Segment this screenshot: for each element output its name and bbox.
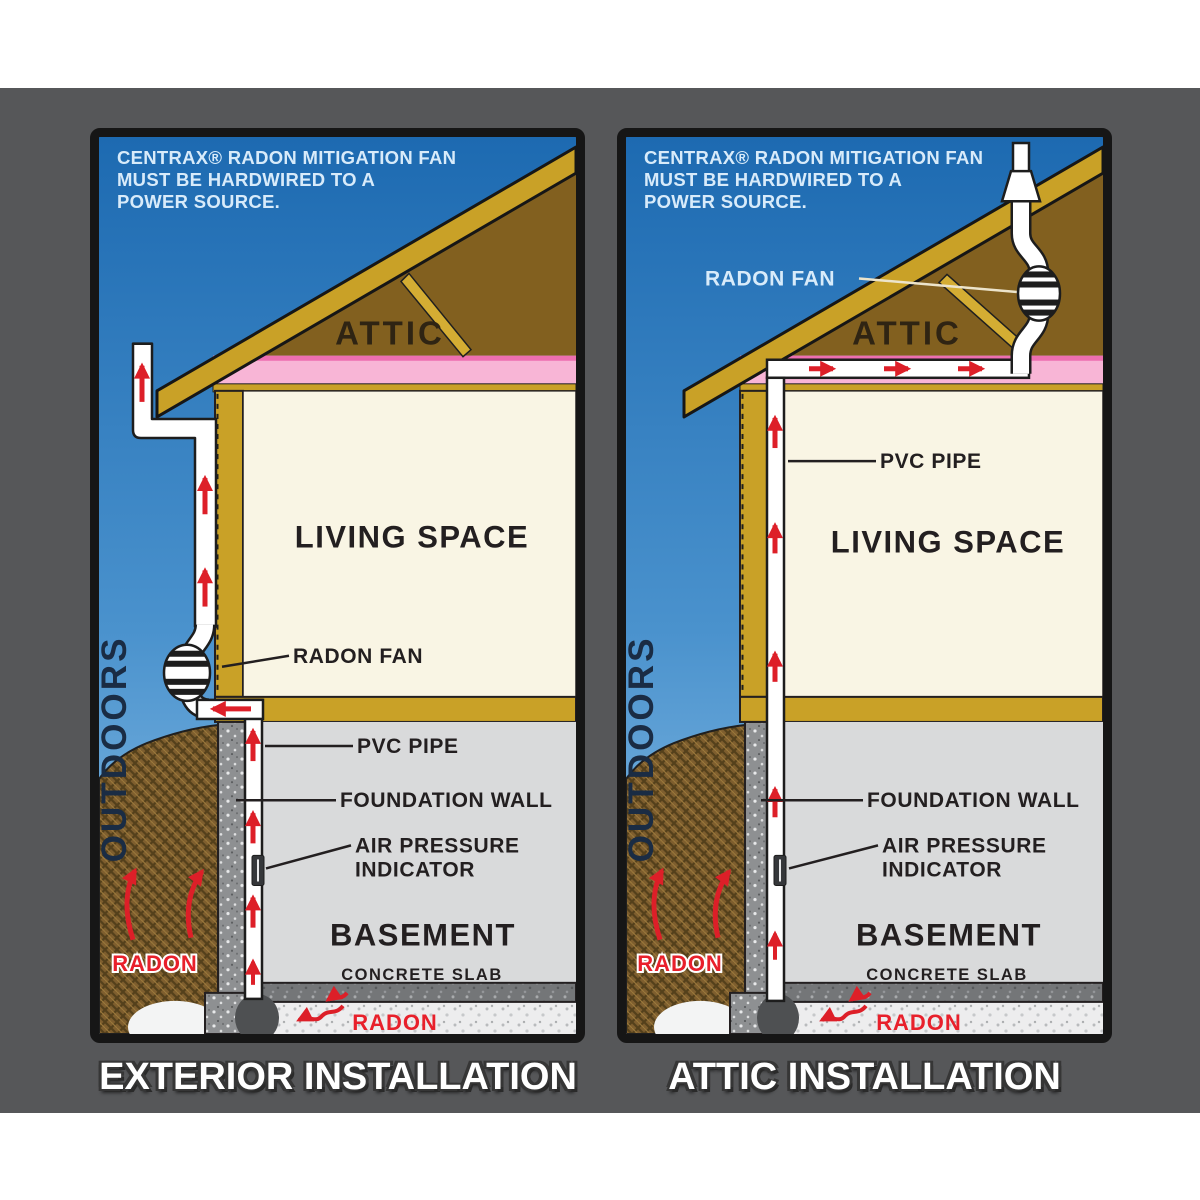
- caption-line-2: MUST BE HARDWIRED TO A: [117, 169, 375, 190]
- caption-line-3: POWER SOURCE.: [644, 191, 807, 212]
- radon-fan-label: RADON FAN: [293, 645, 423, 668]
- pvc-pipe-interior: [767, 378, 784, 1001]
- caption-line-3: POWER SOURCE.: [117, 191, 280, 212]
- caption-line-1: CENTRAX® RADON MITIGATION FAN: [644, 147, 983, 168]
- air-pressure-label-2: INDICATOR: [355, 858, 475, 881]
- radon-mitigation-diagram: ATTIC LIVING SPACE: [0, 0, 1200, 1200]
- air-pressure-indicator-device: [252, 855, 264, 885]
- basement-label: BASEMENT: [330, 918, 516, 953]
- concrete-slab-label: CONCRETE SLAB: [866, 965, 1027, 984]
- caption-line-1: CENTRAX® RADON MITIGATION FAN: [117, 147, 456, 168]
- air-pressure-label-1: AIR PRESSURE: [355, 834, 520, 857]
- attic-installation-title: ATTIC INSTALLATION: [612, 1050, 1117, 1104]
- foundation-wall: [218, 722, 245, 996]
- attic-label: ATTIC: [852, 316, 962, 353]
- concrete-slab-label: CONCRETE SLAB: [341, 965, 502, 984]
- panel-attic-installation: ATTIC LIVING SPACE: [617, 128, 1112, 1043]
- floor-band: [740, 697, 1103, 722]
- outdoors-label: OUTDOORS: [99, 636, 134, 863]
- living-space-label: LIVING SPACE: [831, 524, 1065, 559]
- air-pressure-label-2: INDICATOR: [882, 858, 1002, 881]
- outdoors-label: OUTDOORS: [626, 636, 661, 863]
- concrete-slab: [784, 983, 1103, 1002]
- roof-vent-stub: [1013, 143, 1029, 173]
- foundation-wall-label: FOUNDATION WALL: [867, 789, 1080, 812]
- insulation-edge: [213, 356, 576, 361]
- air-pressure-indicator-device: [774, 855, 786, 885]
- attic-label: ATTIC: [335, 316, 445, 353]
- exterior-wall: [740, 391, 767, 697]
- radon-soil-label: RADON: [112, 951, 198, 976]
- foundation-wall-label: FOUNDATION WALL: [340, 789, 553, 812]
- radon-soil-label: RADON: [637, 951, 723, 976]
- concrete-slab: [262, 983, 576, 1002]
- floor-band: [215, 697, 576, 722]
- pvc-pipe-label: PVC PIPE: [880, 450, 982, 473]
- radon-subslab-label: RADON: [876, 1010, 962, 1034]
- radon-subslab-label: RADON: [352, 1010, 438, 1034]
- basement-label: BASEMENT: [856, 918, 1042, 953]
- living-space-label: LIVING SPACE: [295, 519, 529, 554]
- radon-fan-label: RADON FAN: [705, 267, 835, 290]
- air-pressure-label-1: AIR PRESSURE: [882, 834, 1047, 857]
- pvc-pipe-label: PVC PIPE: [357, 735, 459, 758]
- exterior-installation-title: EXTERIOR INSTALLATION: [78, 1050, 598, 1104]
- foundation-wall: [745, 722, 767, 996]
- panel-exterior-installation: ATTIC LIVING SPACE: [90, 128, 585, 1043]
- exterior-wall: [215, 391, 243, 697]
- caption-line-2: MUST BE HARDWIRED TO A: [644, 169, 902, 190]
